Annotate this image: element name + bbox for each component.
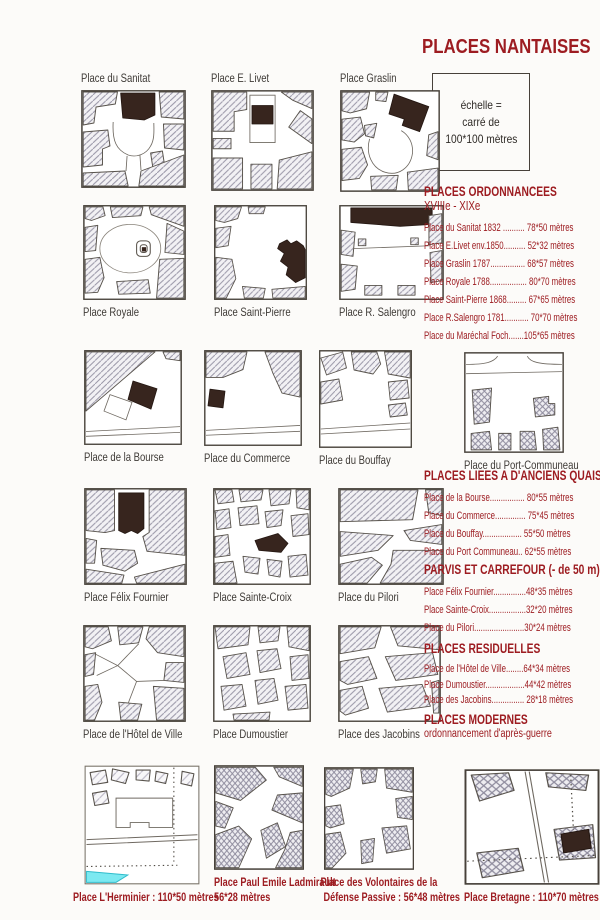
map-sketch-volontaires [323,766,415,871]
poster-places-nantaises: PLACES NANTAISES échelle = carré de 100*… [0,0,600,920]
map-sketch-fournier [83,487,188,586]
list-item: Place de l'Hôtel de Ville........64*34 m… [424,662,596,678]
tile-label: Place de la Bourse [84,450,186,464]
tile-label: Place Bretagne : 110*70 mètres [464,890,600,905]
map-tile-place-du-port-communeau: Place du Port-Communeau [463,351,565,454]
list-item: Place du Commerce.............. 75*45 mè… [424,507,596,525]
tile-label: Place des Volontaires de la Défense Pass… [302,875,436,905]
section-places-liees-quais: PLACES LIEES A D'ANCIENS QUAIS Place de … [424,468,596,561]
list-item: Place Félix Fournier...............48*35… [424,583,596,601]
scale-legend-box: échelle = carré de 100*100 mètres [432,73,530,171]
tile-label: Place de l'Hôtel de Ville [83,727,210,741]
list-item: Place Sainte-Croix.................32*20… [424,601,596,619]
map-tile-place-dumoustier: Place Dumoustier [212,624,312,723]
tile-label: Place Graslin [340,71,412,85]
tile-label: Place R. Salengro [339,305,437,319]
map-sketch-port-communeau [463,351,565,454]
map-sketch-livet [210,89,315,192]
map-sketch-sanitat [80,89,187,189]
section-subheading: XVIIIe - XIXe [424,199,596,213]
map-sketch-sainte-croix [212,487,312,586]
tile-label: Place Saint-Pierre [214,305,312,319]
map-tile-place-l-herminier: Place L'Herminier : 110*50 mètres [83,764,201,886]
list-item: Place du Port Communeau.. 62*55 mètres [424,543,596,561]
map-tile-place-bretagne: Place Bretagne : 110*70 mètres [463,768,600,886]
map-tile-place-des-volontaires: Place des Volontaires de la Défense Pass… [323,766,415,871]
map-tile-place-royale: Place Royale [82,204,187,301]
list-item: Place E.Livet env.1850.......... 52*32 m… [424,237,596,255]
section-heading: PLACES ORDONNANCEES [424,184,596,199]
tile-label: Place Royale [83,305,155,319]
map-tile-place-graslin: Place Graslin [339,89,441,193]
list-item: Place du Maréchal Foch.......105*65 mètr… [424,327,596,345]
list-item: Place Graslin 1787................ 68*57… [424,255,596,273]
section-places-ordonnancees: PLACES ORDONNANCEES XVIIIe - XIXe Place … [424,184,596,345]
map-tile-place-saint-pierre: Place Saint-Pierre [213,204,308,301]
map-sketch-bretagne [463,768,600,886]
map-sketch-royale [82,204,187,301]
map-sketch-hotel-de-ville [82,624,187,723]
tile-label: Place du Sanitat [81,71,170,85]
map-tile-place-sainte-croix: Place Sainte-Croix [212,487,312,586]
list-item: Place du Sanitat 1832 .......... 78*50 m… [424,219,596,237]
scale-line-1: échelle = [460,97,501,114]
map-sketch-dumoustier [212,624,312,723]
tile-label: Place du Commerce [204,451,314,465]
map-sketch-bourse [83,349,183,446]
tile-label: Place Sainte-Croix [213,590,314,604]
map-tile-place-paul-emile-ladmirault: Place Paul Emile Ladmirault 56*28 mètres [213,764,305,871]
scale-line-3: 100*100 mètres [445,131,517,148]
map-sketch-herminier [83,764,201,886]
list-item: Place Dumoustier..................44*42 … [424,678,596,694]
tile-label: Place du Bouffay [319,453,411,467]
map-sketch-saint-pierre [213,204,308,301]
tile-label: Place du Pilori [338,590,416,604]
list-item: Place du Pilori.......................30… [424,619,596,637]
section-places-residuelles: PLACES RESIDUELLES Place de l'Hôtel de V… [424,641,596,709]
map-tile-place-felix-fournier: Place Félix Fournier [83,487,188,586]
tile-label: Place Félix Fournier [84,590,192,604]
map-sketch-commerce [203,349,303,447]
scale-line-2: carré de [462,114,499,131]
section-heading: PARVIS ET CARREFOUR (- de 50 m) [424,562,596,577]
map-tile-place-du-commerce: Place du Commerce [203,349,303,447]
section-heading: PLACES MODERNES [424,712,596,727]
section-places-modernes: PLACES MODERNES ordonnancement d'après-g… [424,712,596,741]
section-subheading: ordonnancement d'après-guerre [424,727,596,741]
page-title: PLACES NANTAISES [422,36,600,59]
map-tile-place-hotel-de-ville: Place de l'Hôtel de Ville [82,624,187,723]
section-heading: PLACES RESIDUELLES [424,641,596,656]
list-item: Place des Jacobins............... 28*18 … [424,693,596,709]
section-parvis-et-carrefour: PARVIS ET CARREFOUR (- de 50 m) Place Fé… [424,562,596,637]
map-sketch-bouffay [318,349,413,449]
map-sketch-graslin [339,89,441,193]
list-item: Place de la Bourse................ 80*55… [424,489,596,507]
map-tile-place-du-bouffay: Place du Bouffay [318,349,413,449]
list-item: Place Saint-Pierre 1868......... 67*65 m… [424,291,596,309]
section-heading: PLACES LIEES A D'ANCIENS QUAIS [424,468,596,483]
map-tile-place-e-livet: Place E. Livet [210,89,315,192]
map-sketch-ladmirault [213,764,305,871]
list-item: Place R.Salengro 1781........... 70*70 m… [424,309,596,327]
map-tile-place-du-sanitat: Place du Sanitat [80,89,187,189]
tile-label: Place E. Livet [211,71,286,85]
list-item: Place du Bouffay.................. 55*50… [424,525,596,543]
map-tile-place-de-la-bourse: Place de la Bourse [83,349,183,446]
list-item: Place Royale 1788................. 80*70… [424,273,596,291]
tile-label: Place Dumoustier [213,727,309,741]
